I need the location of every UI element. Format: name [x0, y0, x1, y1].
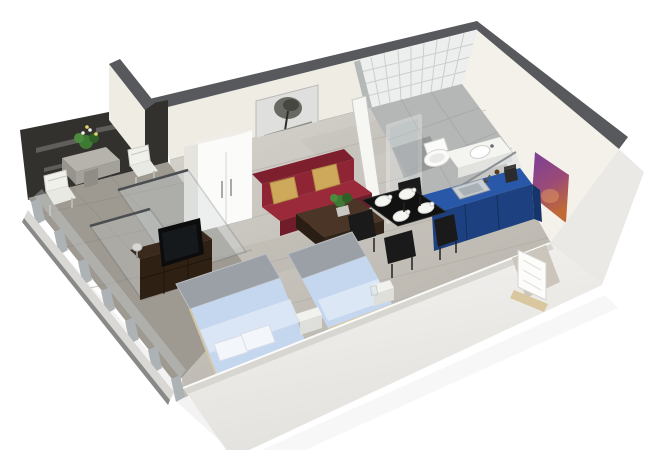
apartment-3d-floor-plan	[0, 0, 650, 450]
water-glass	[370, 286, 377, 296]
floorplan-render	[0, 0, 650, 450]
